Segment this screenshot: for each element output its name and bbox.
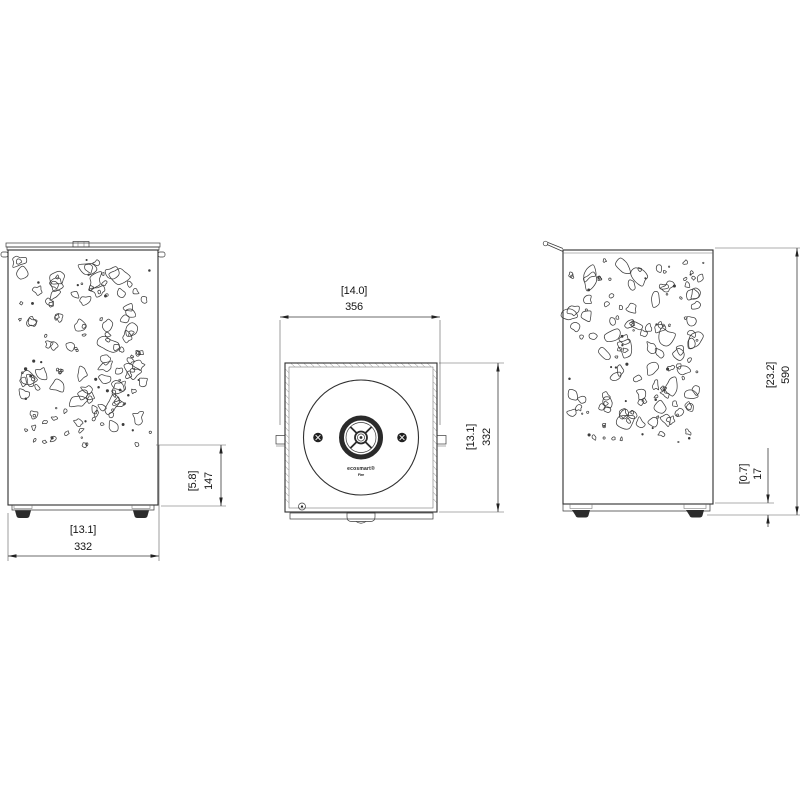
base-plinth — [12, 505, 154, 510]
pattern-blob — [680, 297, 683, 300]
brand-logo-sub: Fire — [358, 473, 364, 477]
hatch-tick — [286, 454, 289, 458]
hatch-tick — [434, 415, 437, 419]
hatch-tick — [286, 441, 289, 445]
pattern-blob — [127, 394, 129, 396]
lid-top-edge — [6, 243, 160, 247]
pattern-blob — [627, 418, 631, 423]
pattern-blob — [105, 338, 110, 342]
hatch-tick — [286, 408, 289, 412]
pattern-blob — [30, 375, 32, 377]
hatch-tick — [428, 364, 432, 367]
pattern-blob — [132, 430, 134, 432]
top-view-dimensions: [14.0] 356 [13.1] 332 — [280, 285, 504, 512]
pattern-blob — [685, 429, 691, 435]
hatch-tick — [286, 467, 289, 471]
pattern-blob — [628, 280, 635, 290]
hatch-tick — [434, 389, 437, 393]
pattern-blob — [126, 323, 138, 337]
pattern-blob — [13, 256, 27, 267]
arrow-down-icon — [219, 498, 222, 507]
hatch-tick — [337, 364, 341, 367]
lid-knob — [543, 241, 548, 246]
front-band-dim-inches: [5.8] — [187, 471, 199, 492]
front-view-dimensions: [5.8] 147 [13.1] 332 — [8, 445, 226, 561]
pattern-blob — [666, 416, 675, 425]
pattern-blob — [122, 423, 124, 425]
front-view — [1, 242, 165, 519]
foot — [572, 510, 590, 518]
pattern-blob — [603, 425, 604, 426]
hatch-tick — [330, 364, 334, 367]
pattern-blob — [609, 278, 611, 280]
pattern-blob — [95, 378, 97, 380]
top-depth-dim-inches: [13.1] — [465, 424, 477, 450]
front-width-dim-mm: 332 — [74, 541, 92, 553]
pattern-blob — [645, 323, 651, 331]
pattern-blob — [98, 361, 113, 372]
pattern-blob — [51, 417, 58, 421]
pattern-blob — [585, 309, 587, 311]
hatch-tick — [286, 382, 289, 386]
pattern-blob — [688, 437, 690, 439]
pattern-blob — [628, 411, 637, 419]
wall-hatching — [286, 364, 437, 503]
pattern-blob — [696, 371, 698, 373]
hatch-tick — [434, 408, 437, 412]
pattern-blob — [102, 319, 112, 332]
pattern-blob — [688, 358, 692, 363]
pattern-blob — [687, 317, 697, 326]
pattern-blob — [684, 277, 687, 280]
side-height-dim-mm: 590 — [780, 366, 792, 384]
pattern-blob — [661, 281, 675, 292]
hatch-tick — [286, 434, 289, 438]
pattern-blob — [686, 288, 700, 300]
pattern-blob — [124, 363, 142, 379]
pattern-blob — [81, 386, 93, 394]
perforation-pattern-front — [13, 256, 152, 447]
hatch-tick — [395, 364, 399, 367]
pattern-blob — [581, 311, 591, 322]
pattern-blob — [652, 291, 660, 307]
pattern-blob — [658, 322, 663, 329]
arrow-up-icon — [496, 363, 499, 372]
pattern-blob — [648, 417, 658, 427]
pattern-blob — [106, 390, 108, 392]
pattern-blob — [50, 379, 64, 392]
arrow-up-icon — [795, 248, 798, 257]
pattern-blob — [691, 301, 700, 309]
technical-dimension-drawing: [5.8] 147 [13.1] 332 — [0, 0, 800, 800]
hatch-tick — [402, 364, 406, 367]
pattern-blob — [71, 291, 79, 298]
pattern-blob — [120, 347, 125, 352]
pattern-blob — [678, 441, 679, 442]
hatch-tick — [369, 364, 373, 367]
pattern-blob — [20, 302, 23, 305]
side-foot-dim-inches: [0.7] — [738, 464, 750, 485]
pattern-blob — [660, 414, 670, 426]
pattern-blob — [32, 286, 42, 296]
arrow-down-icon — [795, 507, 798, 516]
arrow-up-icon — [219, 445, 222, 454]
pattern-blob — [673, 285, 675, 287]
pattern-blob — [615, 258, 630, 274]
pattern-blob — [696, 339, 698, 341]
pattern-blob — [617, 365, 624, 377]
pattern-blob — [74, 419, 83, 427]
hatch-tick — [286, 473, 289, 477]
pattern-blob — [567, 409, 576, 416]
pattern-blob — [589, 333, 597, 340]
pattern-blob — [668, 324, 670, 327]
pattern-blob — [568, 389, 577, 400]
hatch-tick — [434, 428, 437, 432]
pattern-blob — [80, 296, 91, 305]
pattern-blob — [45, 341, 53, 348]
pattern-blob — [141, 296, 147, 303]
hatch-tick — [286, 428, 289, 432]
hatch-tick — [286, 415, 289, 419]
pattern-blob — [78, 366, 88, 381]
front-lip — [290, 513, 433, 519]
hatch-tick — [286, 389, 289, 393]
pattern-blob — [104, 295, 106, 297]
hatch-tick — [434, 369, 437, 373]
pattern-blob — [85, 421, 87, 423]
hatch-tick — [286, 421, 289, 425]
hatch-tick — [324, 364, 328, 367]
hatch-tick — [434, 402, 437, 406]
pattern-blob — [584, 295, 592, 304]
pattern-blob — [592, 435, 596, 441]
pattern-blob — [691, 289, 699, 299]
hatch-tick — [434, 395, 437, 399]
pattern-blob — [133, 289, 139, 294]
hatch-tick — [311, 364, 315, 367]
pattern-blob — [656, 324, 658, 326]
hatch-tick — [286, 493, 289, 497]
pattern-blob — [685, 402, 692, 410]
pattern-blob — [633, 330, 635, 332]
pattern-blob — [98, 375, 110, 384]
pattern-blob — [655, 399, 657, 401]
pattern-blob — [664, 377, 677, 396]
hatch-tick — [408, 364, 412, 367]
hatch-tick — [286, 499, 289, 503]
hatch-tick — [350, 364, 354, 367]
pattern-blob — [92, 417, 95, 421]
arrow-up-icon — [766, 515, 769, 524]
top-view: ecosmart® Fire — [276, 363, 446, 523]
pattern-blob — [612, 437, 616, 440]
pattern-blob — [569, 378, 571, 380]
pattern-blob — [117, 288, 125, 297]
hatch-tick — [434, 434, 437, 438]
hatch-tick — [356, 364, 360, 367]
pattern-blob — [666, 293, 668, 295]
pattern-blob — [56, 368, 58, 371]
pattern-blob — [149, 270, 151, 272]
hatch-tick — [434, 499, 437, 503]
pattern-blob — [636, 417, 645, 428]
pattern-blob — [31, 425, 35, 431]
pattern-blob — [101, 281, 107, 286]
hatch-tick — [363, 364, 367, 367]
pattern-blob — [615, 367, 617, 369]
pattern-blob — [109, 413, 114, 418]
pattern-blob — [135, 442, 139, 446]
pattern-blob — [604, 302, 609, 307]
base-plinth — [563, 504, 710, 511]
drawing-canvas: [5.8] 147 [13.1] 332 — [0, 0, 800, 800]
top-depth-dim-mm: 332 — [481, 428, 493, 446]
hatch-tick — [286, 376, 289, 380]
hatch-tick — [286, 395, 289, 399]
pattern-blob — [623, 348, 628, 352]
pattern-blob — [619, 335, 630, 345]
pattern-blob — [582, 413, 583, 414]
pattern-blob — [677, 366, 691, 375]
pattern-blob — [683, 260, 688, 264]
pattern-blob — [583, 272, 596, 291]
pattern-blob — [82, 443, 87, 448]
pattern-blob — [25, 429, 28, 432]
pattern-blob — [105, 267, 119, 279]
hatch-tick — [286, 447, 289, 451]
pattern-blob — [656, 265, 661, 273]
pattern-blob — [576, 405, 582, 411]
foot — [15, 511, 31, 519]
pattern-blob — [659, 328, 676, 346]
pattern-blob — [703, 262, 704, 263]
pattern-blob — [132, 389, 137, 394]
hatch-tick — [415, 364, 419, 367]
hatch-tick — [286, 369, 289, 373]
hatch-tick — [382, 364, 386, 367]
pattern-blob — [697, 274, 703, 282]
pattern-blob — [33, 360, 35, 362]
foot — [133, 511, 149, 519]
pattern-blob — [69, 396, 87, 407]
pattern-blob — [682, 376, 684, 379]
screw-right — [397, 433, 407, 443]
arrow-down-icon — [766, 495, 769, 504]
hatch-tick — [434, 473, 437, 477]
pattern-blob — [109, 420, 118, 431]
pattern-blob — [64, 409, 67, 414]
pattern-blob — [149, 431, 151, 433]
pattern-blob — [115, 368, 122, 374]
pattern-blob — [620, 437, 622, 441]
top-width-dim-inches: [14.0] — [341, 285, 367, 297]
pattern-blob — [603, 437, 605, 439]
hatch-tick — [291, 364, 295, 367]
pattern-blob — [647, 342, 656, 354]
pattern-blob — [587, 411, 589, 413]
foot — [686, 510, 704, 518]
pattern-blob — [50, 278, 64, 292]
pattern-blob — [55, 407, 57, 409]
pattern-blob — [645, 278, 646, 279]
pattern-blob — [123, 303, 132, 311]
pattern-blob — [65, 431, 70, 436]
hatch-tick — [286, 460, 289, 464]
front-width-dim-inches: [13.1] — [70, 524, 96, 536]
pattern-blob — [668, 266, 669, 267]
pattern-blob — [684, 390, 698, 399]
hatch-tick — [434, 493, 437, 497]
pattern-blob — [616, 415, 634, 429]
hatch-tick — [434, 460, 437, 464]
side-pin-left — [1, 252, 8, 257]
pattern-blob — [127, 281, 132, 287]
pattern-blob — [619, 305, 622, 309]
pattern-blob — [647, 362, 659, 375]
screw-left — [313, 433, 323, 443]
pattern-blob — [610, 318, 616, 326]
arrow-left-icon — [8, 554, 17, 557]
pattern-blob — [86, 259, 87, 260]
pattern-blob — [20, 377, 27, 387]
pattern-blob — [119, 389, 121, 391]
pattern-blob — [79, 428, 84, 433]
pattern-blob — [602, 392, 610, 400]
pattern-blob — [105, 332, 111, 337]
pattern-blob — [139, 378, 147, 387]
pattern-blob — [677, 414, 679, 416]
pattern-blob — [663, 270, 666, 273]
pattern-blob — [33, 438, 36, 442]
side-view-dimensions: [23.2] 590 [0.7] 17 — [707, 248, 800, 527]
pattern-blob — [658, 432, 665, 437]
side-view — [543, 241, 713, 517]
pattern-blob — [616, 316, 619, 320]
pattern-blob — [77, 284, 79, 286]
pattern-blob — [98, 386, 100, 388]
side-pin-right — [158, 252, 165, 257]
hatch-tick — [286, 402, 289, 406]
hatch-tick — [434, 447, 437, 451]
pattern-blob — [580, 335, 584, 339]
pattern-blob — [24, 368, 27, 371]
hatch-tick — [421, 364, 425, 367]
arrow-right-icon — [151, 554, 160, 557]
pattern-blob — [675, 408, 684, 416]
hatch-tick — [434, 421, 437, 425]
lid-handle — [73, 242, 89, 248]
pattern-blob — [35, 368, 47, 380]
pattern-blob — [615, 356, 618, 358]
top-width-dim-mm: 356 — [345, 301, 363, 313]
pattern-blob — [673, 348, 685, 360]
pattern-blob — [126, 309, 136, 317]
pattern-blob — [654, 395, 658, 398]
pattern-blob — [652, 380, 658, 390]
pattern-blob — [610, 366, 611, 367]
pattern-blob — [654, 400, 666, 413]
arrow-down-icon — [496, 504, 499, 513]
pattern-blob — [78, 263, 97, 274]
pattern-blob — [598, 347, 610, 359]
hatch-tick — [434, 382, 437, 386]
pattern-blob — [690, 274, 691, 275]
pattern-blob — [40, 361, 42, 363]
pattern-blob — [81, 437, 83, 439]
pattern-blob — [652, 427, 653, 428]
pattern-blob — [42, 421, 47, 424]
pattern-blob — [85, 264, 93, 273]
hatch-tick — [434, 441, 437, 445]
mount-tab-right — [437, 436, 446, 445]
pattern-blob — [42, 440, 47, 443]
hatch-tick — [286, 486, 289, 490]
hatch-tick — [434, 467, 437, 471]
pattern-blob — [98, 290, 101, 294]
arrow-left-icon — [280, 315, 289, 318]
hatch-tick — [434, 486, 437, 490]
hatch-tick — [304, 364, 308, 367]
pattern-blob — [692, 276, 696, 280]
mount-tab-left — [276, 436, 285, 445]
pattern-blob — [625, 400, 626, 401]
pattern-blob — [18, 318, 21, 321]
pattern-blob — [578, 396, 586, 403]
pattern-blob — [657, 416, 659, 419]
pattern-blob — [100, 423, 104, 426]
hatch-tick — [286, 480, 289, 484]
hatch-tick — [298, 364, 302, 367]
pattern-blob — [35, 385, 40, 391]
hatch-tick — [317, 364, 321, 367]
pattern-blob — [100, 317, 103, 320]
pattern-blob — [603, 259, 607, 263]
pattern-blob — [687, 330, 695, 337]
pattern-blob — [588, 434, 590, 436]
hatch-tick — [434, 480, 437, 484]
side-height-dim-inches: [23.2] — [765, 362, 777, 388]
brand-logo-text: ecosmart® — [347, 465, 375, 472]
pattern-blob — [38, 282, 40, 284]
pattern-blob — [571, 322, 580, 331]
pattern-blob — [19, 389, 30, 399]
latch — [347, 513, 375, 522]
pattern-blob — [630, 322, 643, 330]
pattern-blob — [81, 283, 83, 285]
side-foot-dim-mm: 17 — [752, 468, 764, 480]
pattern-blob — [622, 344, 624, 346]
pattern-blob — [626, 363, 628, 365]
pattern-blob — [66, 343, 75, 352]
hatch-tick — [434, 454, 437, 458]
pattern-blob — [44, 334, 47, 337]
pattern-blob — [686, 403, 693, 411]
hatch-tick — [376, 364, 380, 367]
hatch-tick — [434, 376, 437, 380]
pattern-blob — [56, 275, 59, 279]
pattern-blob — [82, 334, 86, 336]
front-band-dim-mm: 147 — [203, 472, 215, 490]
pattern-blob — [633, 375, 641, 382]
hatch-tick — [343, 364, 347, 367]
pattern-blob — [685, 282, 690, 288]
pattern-blob — [51, 342, 59, 351]
perforation-pattern-side — [561, 258, 704, 443]
pattern-blob — [642, 434, 644, 436]
arrow-right-icon — [432, 315, 441, 318]
pattern-blob — [673, 401, 678, 407]
